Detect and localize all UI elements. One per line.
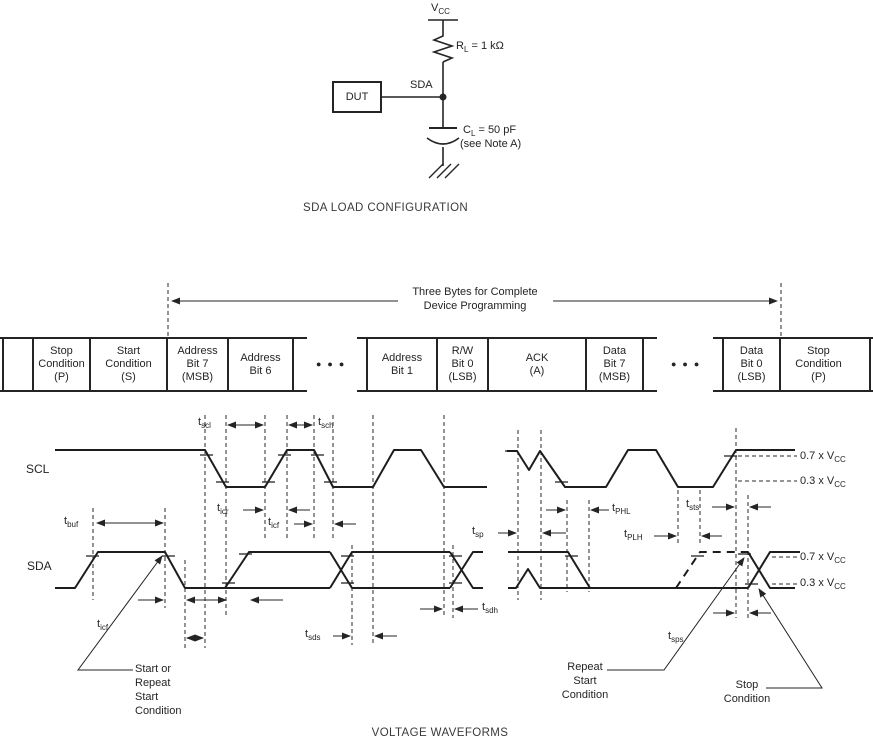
level-label-sda-03: 0.3 x VCC bbox=[800, 577, 846, 591]
byte-cell-ack: ACK (A) bbox=[488, 339, 586, 390]
callout-pointers bbox=[78, 556, 822, 688]
level-guides bbox=[738, 456, 797, 584]
load-configuration-caption: SDA LOAD CONFIGURATION bbox=[303, 202, 583, 215]
threshold-ticks bbox=[86, 451, 758, 584]
start-condition-pointer bbox=[78, 556, 162, 670]
sda-waveform bbox=[55, 552, 800, 588]
timing-label-ticf-scl: ticf bbox=[268, 516, 279, 530]
capacitor-plate-bottom bbox=[427, 138, 459, 144]
timing-label-tsp: tsp bbox=[472, 525, 484, 539]
sda-node-label: SDA bbox=[410, 79, 433, 92]
byte-cell-data7: Data Bit 7 (MSB) bbox=[586, 339, 643, 390]
sda-node-dot bbox=[440, 94, 447, 101]
stop-condition-pointer bbox=[759, 589, 822, 688]
timing-label-tsds: tsds bbox=[305, 628, 321, 642]
timing-label-tsts: tsts bbox=[686, 498, 699, 512]
byte-cell-start: Start Condition (S) bbox=[90, 339, 167, 390]
sda-label: SDA bbox=[27, 560, 52, 573]
capacitor-note: (see Note A) bbox=[460, 138, 521, 151]
level-label-scl-07: 0.7 x VCC bbox=[800, 450, 846, 464]
resistor-label: RL = 1 kΩ bbox=[456, 40, 504, 54]
vcc-rail bbox=[428, 20, 458, 33]
scl-waveform bbox=[55, 450, 795, 487]
timing-label-tplh: tPLH bbox=[624, 528, 643, 542]
byte-cell-data0: Data Bit 0 (LSB) bbox=[723, 339, 780, 390]
ellipsis-dots-left: ●●● bbox=[316, 359, 350, 369]
byte-cell-rw: R/W Bit 0 (LSB) bbox=[437, 339, 488, 390]
repeat-start-pointer bbox=[607, 558, 744, 670]
byte-cell-addr1: Address Bit 1 bbox=[367, 339, 437, 390]
annotation-stop-condition: Stop Condition bbox=[712, 678, 782, 706]
timing-label-tbuf: tbuf bbox=[64, 515, 78, 529]
sda-repeat-start-dashed bbox=[676, 552, 748, 588]
three-bytes-label: Three Bytes for Complete Device Programm… bbox=[375, 285, 575, 313]
byte-cell-stop-2: Stop Condition (P) bbox=[780, 339, 857, 390]
level-label-scl-03: 0.3 x VCC bbox=[800, 475, 846, 489]
timing-label-tsdh: tsdh bbox=[482, 601, 498, 615]
resistor-symbol bbox=[434, 33, 452, 62]
timing-label-ticf-sda: ticf bbox=[97, 618, 108, 632]
byte-cell-addr7: Address Bit 7 (MSB) bbox=[167, 339, 228, 390]
timing-label-ticr: ticr bbox=[217, 502, 229, 516]
ground-icon bbox=[429, 164, 459, 178]
vcc-label: VCC bbox=[431, 2, 450, 16]
annotation-start-condition: Start or Repeat Start Condition bbox=[135, 662, 181, 718]
timing-label-tscl: tscl bbox=[198, 416, 211, 430]
scl-label: SCL bbox=[26, 463, 49, 476]
ellipsis-dots-right: ●●● bbox=[671, 359, 705, 369]
datasheet-figure: VCC RL = 1 kΩ DUT SDA CL = 50 pF (see No… bbox=[0, 0, 873, 748]
timing-label-tsch: tsch bbox=[318, 416, 334, 430]
timing-label-tphl: tPHL bbox=[612, 502, 631, 516]
annotation-repeat-start-condition: Repeat Start Condition bbox=[550, 660, 620, 702]
voltage-waveforms-caption: VOLTAGE WAVEFORMS bbox=[300, 727, 580, 740]
byte-cell-addr6: Address Bit 6 bbox=[228, 339, 293, 390]
dut-label: DUT bbox=[333, 82, 381, 112]
level-label-sda-07: 0.7 x VCC bbox=[800, 551, 846, 565]
capacitor-label: CL = 50 pF bbox=[463, 124, 516, 138]
timing-label-tsps: tsps bbox=[668, 630, 684, 644]
byte-cell-stop-1: Stop Condition (P) bbox=[33, 339, 90, 390]
